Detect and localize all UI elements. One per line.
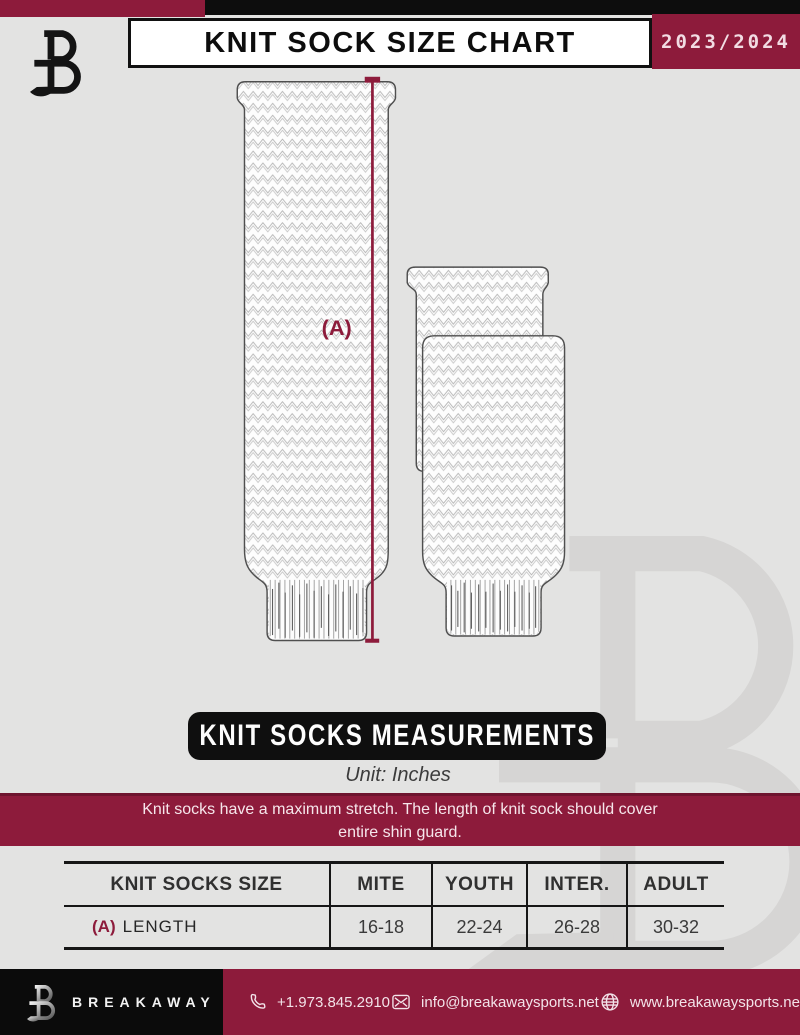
knit-sock-size-chart-page: KNIT SOCK SIZE CHART 2023/2024 — [0, 0, 800, 1035]
length-value-youth: 22-24 — [431, 907, 526, 947]
top-accent-bar-black — [205, 0, 800, 15]
measurements-banner: KNIT SOCKS MEASUREMENTS — [188, 712, 606, 760]
footer: BREAKAWAY +1.973.845.2910 info@breakaway… — [0, 969, 800, 1035]
footer-website-text: www.breakawaysports.net — [630, 994, 800, 1011]
row-measure-name: LENGTH — [123, 917, 198, 937]
size-table-header-inter: INTER. — [526, 864, 626, 907]
size-table-header-label: KNIT SOCKS SIZE — [64, 864, 329, 907]
footer-brand-block: BREAKAWAY — [0, 969, 223, 1035]
season-badge: 2023/2024 — [652, 14, 800, 69]
size-table-header-mite: MITE — [329, 864, 431, 907]
size-table-row-label: (A) LENGTH — [64, 907, 329, 947]
stretch-notice-bar: Knit socks have a maximum stretch. The l… — [0, 793, 800, 846]
globe-icon — [599, 991, 621, 1013]
measurement-line-a — [365, 77, 380, 643]
top-accent-bar-maroon — [0, 0, 205, 17]
footer-phone[interactable]: +1.973.845.2910 — [247, 992, 390, 1013]
envelope-icon — [390, 991, 412, 1013]
phone-icon — [247, 992, 268, 1013]
unit-label: Unit: Inches — [0, 764, 796, 787]
footer-email[interactable]: info@breakawaysports.net — [390, 991, 599, 1013]
footer-phone-text: +1.973.845.2910 — [277, 994, 390, 1011]
notice-line-1: Knit socks have a maximum stretch. The l… — [142, 798, 658, 821]
measurement-label-a: (A) — [322, 315, 352, 340]
size-table: KNIT SOCKS SIZE MITE YOUTH INTER. ADULT … — [64, 861, 724, 950]
footer-contacts: +1.973.845.2910 info@breakawaysports.net… — [223, 969, 800, 1035]
length-value-inter: 26-28 — [526, 907, 626, 947]
page-title-box: KNIT SOCK SIZE CHART — [128, 18, 652, 68]
breakaway-b-logo-small-icon — [26, 982, 60, 1023]
page-title: KNIT SOCK SIZE CHART — [204, 27, 576, 60]
measurements-banner-title: KNIT SOCKS MEASUREMENTS — [199, 719, 594, 753]
breakaway-b-logo-icon — [28, 25, 90, 99]
big-sock-rib-lines — [273, 583, 363, 638]
footer-email-text: info@breakawaysports.net — [421, 994, 599, 1011]
length-value-mite: 16-18 — [329, 907, 431, 947]
row-measure-prefix: (A) — [92, 917, 116, 937]
footer-brand-name: BREAKAWAY — [72, 994, 216, 1010]
length-value-adult: 30-32 — [626, 907, 724, 947]
footer-website[interactable]: www.breakawaysports.net — [599, 991, 800, 1013]
size-table-header-adult: ADULT — [626, 864, 724, 907]
size-table-header-youth: YOUTH — [431, 864, 526, 907]
season-label: 2023/2024 — [661, 31, 791, 53]
notice-line-2: entire shin guard. — [338, 821, 462, 844]
